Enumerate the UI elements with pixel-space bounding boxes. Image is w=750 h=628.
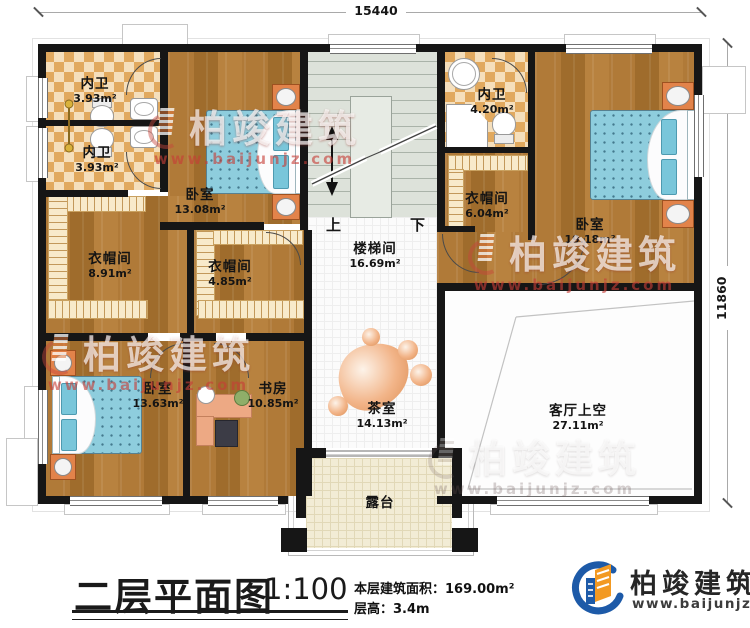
stair-landing: [350, 96, 392, 218]
nightstand: [272, 84, 300, 110]
wall-cloak-bottom-a: [44, 333, 148, 341]
window-top-stair: [330, 44, 416, 54]
wardrobe-rack: [198, 300, 304, 319]
window-left-bath1: [38, 78, 48, 118]
room-label-stair-hall: 楼梯间16.69m²: [330, 242, 420, 271]
nightstand: [272, 194, 300, 220]
wardrobe-rack: [48, 300, 148, 319]
wall-bedroom-top-bottom: [160, 222, 264, 230]
desk-return: [196, 416, 214, 446]
room-label-bedroom-right: 卧室19.18m²: [545, 218, 635, 247]
window-sill: [122, 24, 188, 45]
title-underline: [72, 610, 348, 620]
room-label-study: 书房10.85m²: [228, 382, 318, 411]
terrace-column-right: [452, 528, 478, 552]
wall-cloak-bottom-c: [246, 333, 308, 341]
window-left-bath2: [38, 128, 48, 178]
wardrobe-rack: [66, 196, 146, 212]
company-website: www.baijunjz.com: [632, 596, 750, 612]
nightstand: [50, 454, 76, 480]
dimension-top-value: 15440: [346, 3, 406, 18]
window-bottom-study: [208, 496, 278, 506]
nightstand: [50, 350, 76, 376]
computer-monitor: [215, 420, 238, 447]
window-top-bedroom-right: [566, 44, 652, 54]
wall-bedroomright-west: [528, 52, 535, 240]
wall-bath2-bottom: [44, 190, 128, 197]
nightstand: [662, 82, 694, 110]
room-label-cloak-right: 衣帽间6.04m²: [445, 192, 529, 221]
exterior-platform: [6, 438, 38, 506]
floor-height-line: 层高：3.4m: [354, 598, 430, 617]
company-logo-icon: [566, 560, 624, 618]
wall-bath-bedroom: [160, 52, 168, 192]
living-void-floor: [445, 291, 694, 496]
sink: [130, 126, 158, 148]
drawing-scale: 1:100: [264, 572, 348, 606]
exterior-platform: [702, 66, 746, 114]
room-label-bath1: 内卫3.93m²: [50, 77, 140, 106]
window-left-bedroom: [38, 390, 48, 464]
wall-terrace-left: [296, 448, 306, 518]
window-bottom-bedroom: [70, 496, 162, 506]
bed-headboard: [52, 376, 60, 454]
bed-pillow: [61, 419, 77, 451]
room-label-bedroom-top: 卧室13.08m²: [155, 188, 245, 217]
floor-plan-canvas: 15440 11860: [0, 0, 750, 628]
room-label-bath2: 内卫3.93m²: [52, 146, 142, 175]
bed-right: [590, 110, 694, 200]
stair-down-label: 下: [410, 214, 425, 235]
bed-pillow: [273, 155, 289, 189]
window-bottom-living: [497, 496, 649, 506]
room-label-tea-room: 茶室14.13m²: [337, 402, 427, 431]
decor-stone: [410, 364, 432, 386]
wall-bathright-bottom: [445, 147, 528, 153]
stair-up-label: 上: [326, 214, 341, 235]
nightstand: [662, 200, 694, 228]
dimension-right-value: 11860: [714, 266, 730, 330]
room-label-cloak-left: 衣帽间8.91m²: [65, 252, 155, 281]
wall-tea-void: [437, 287, 445, 448]
wall-bedroom-stair: [300, 52, 308, 230]
window-right-bedroom: [694, 95, 704, 177]
bed-pillow: [661, 119, 677, 155]
sink-round: [448, 58, 480, 90]
room-label-terrace: 露台: [340, 496, 420, 512]
floor-area-line: 本层建筑面积：169.00m²: [354, 578, 514, 597]
wall-stair-bathright: [437, 52, 445, 232]
wall-between-baths: [44, 120, 160, 126]
bed-pillow: [61, 383, 77, 415]
bed-pillow: [661, 159, 677, 195]
wardrobe-rack: [48, 196, 68, 300]
decor-stone: [362, 328, 380, 346]
room-label-living-void: 客厅上空27.11m²: [533, 404, 623, 433]
terrace-column-left: [281, 528, 307, 552]
bed-pillow: [273, 117, 289, 151]
decor-stone: [398, 340, 418, 360]
room-label-bath-right: 内卫4.20m²: [450, 88, 534, 117]
wall-cloakright-stub: [445, 226, 475, 232]
wall-void-top: [437, 283, 702, 291]
room-label-cloak-mid: 衣帽间4.85m²: [185, 260, 275, 289]
room-label-bedroom-bl: 卧室13.63m²: [113, 382, 203, 411]
bed-top: [206, 110, 302, 194]
wall-cloak-bottom-b: [180, 333, 216, 341]
wall-terrace-right: [452, 448, 462, 518]
